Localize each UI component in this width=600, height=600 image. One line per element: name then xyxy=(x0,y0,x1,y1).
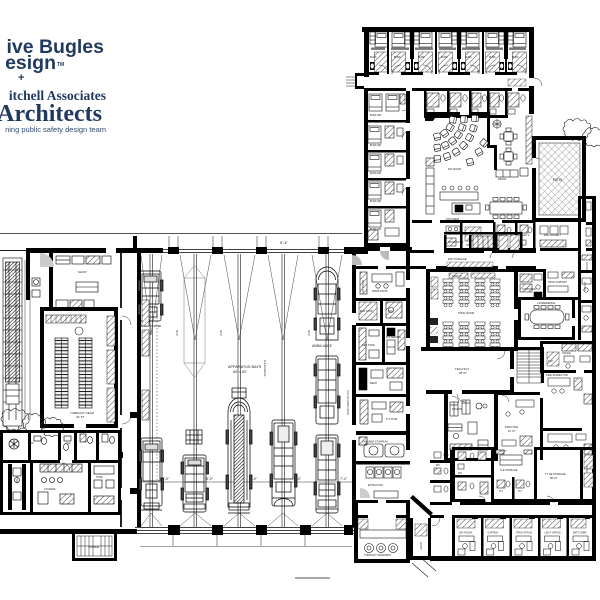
svg-text:DAY ROOM: DAY ROOM xyxy=(459,532,472,535)
svg-text:TOILET 2: TOILET 2 xyxy=(519,234,530,237)
svg-text:JAN: JAN xyxy=(388,310,393,313)
svg-text:22' 07': 22' 07' xyxy=(508,429,516,433)
svg-text:EMS STOR: EMS STOR xyxy=(360,310,373,313)
svg-text:BUNK RM: BUNK RM xyxy=(370,114,381,117)
svg-text:CLO: CLO xyxy=(548,360,553,363)
svg-text:TT SE STORAGE: TT SE STORAGE xyxy=(545,472,566,476)
svg-text:BUNK: BUNK xyxy=(418,56,425,59)
svg-text:OFFICE: OFFICE xyxy=(585,262,588,271)
svg-text:STOR: STOR xyxy=(96,476,103,479)
svg-text:DISPLAY: DISPLAY xyxy=(452,275,462,278)
svg-text:DAY ROOM: DAY ROOM xyxy=(448,168,461,171)
svg-text:TOILET 1: TOILET 1 xyxy=(497,234,508,237)
svg-text:BUNK: BUNK xyxy=(370,56,377,59)
svg-text:WC: WC xyxy=(96,442,100,445)
svg-text:7'-4": 7'-4" xyxy=(340,477,348,481)
svg-text:BUNK: BUNK xyxy=(512,56,519,59)
svg-text:CAPTAIN: CAPTAIN xyxy=(488,532,498,535)
svg-text:WC: WC xyxy=(458,472,462,475)
svg-text:30'-0": 30'-0" xyxy=(175,330,178,336)
svg-text:OFFICE: OFFICE xyxy=(562,352,571,355)
svg-text:PRACTICE: PRACTICE xyxy=(505,425,518,429)
svg-text:30'-0": 30'-0" xyxy=(219,330,222,336)
svg-text:BUNK: BUNK xyxy=(489,56,496,59)
svg-text:WC: WC xyxy=(436,464,440,467)
svg-text:HOSE STOR: HOSE STOR xyxy=(448,240,463,244)
svg-text:CANNABIS STUARIUM: CANNABIS STUARIUM xyxy=(362,441,387,444)
svg-text:9'-4": 9'-4" xyxy=(280,240,289,245)
svg-text:28' 07': 28' 07' xyxy=(459,371,468,375)
svg-text:BATT CHIEF: BATT CHIEF xyxy=(573,532,587,535)
svg-text:GEN STOR: GEN STOR xyxy=(362,344,375,347)
svg-text:ning public safety design team: ning public safety design team xyxy=(5,125,106,134)
svg-text:TM: TM xyxy=(57,62,64,68)
svg-text:+: + xyxy=(18,72,24,84)
svg-text:30'-0": 30'-0" xyxy=(307,330,310,336)
svg-text:COMPUTER: COMPUTER xyxy=(522,288,536,291)
svg-text:SHWR: SHWR xyxy=(15,476,18,484)
svg-text:BUNK: BUNK xyxy=(465,56,472,59)
svg-text:BUNK: BUNK xyxy=(394,56,401,59)
svg-text:MECH: MECH xyxy=(370,382,377,385)
svg-text:CONFERENCE: CONFERENCE xyxy=(537,301,555,305)
svg-text:APPARATUS BAYS: APPARATUS BAYS xyxy=(228,365,262,369)
svg-text:OFFICE: OFFICE xyxy=(583,282,586,291)
svg-text:TLE STORAGE: TLE STORAGE xyxy=(500,469,518,472)
svg-text:BUNK: BUNK xyxy=(441,56,448,59)
svg-text:AMBULANCE: AMBULANCE xyxy=(312,344,332,348)
svg-text:BUNK RM: BUNK RM xyxy=(370,228,381,231)
svg-text:BREAK RM: BREAK RM xyxy=(361,280,364,293)
svg-text:PATIO: PATIO xyxy=(553,178,563,182)
svg-text:TRNG SUPPORT: TRNG SUPPORT xyxy=(548,281,567,284)
svg-text:8'-0": 8'-0" xyxy=(206,477,214,481)
svg-text:WORK ROOM: WORK ROOM xyxy=(372,290,388,293)
svg-text:STOR: STOR xyxy=(585,466,588,473)
svg-text:ENTRY: ENTRY xyxy=(419,542,422,550)
svg-text:BUNK RM: BUNK RM xyxy=(370,144,381,147)
svg-text:58' 07': 58' 07' xyxy=(550,476,558,480)
svg-text:42' 57': 42' 57' xyxy=(76,415,85,419)
svg-text:EXIT PASSAGE: EXIT PASSAGE xyxy=(448,257,467,261)
svg-text:JAN: JAN xyxy=(66,442,71,445)
svg-text:FLX SERVER: FLX SERVER xyxy=(386,336,401,339)
svg-text:BUNK RM: BUNK RM xyxy=(370,172,381,175)
svg-text:25' 07': 25' 07' xyxy=(500,450,507,453)
svg-text:HALL: HALL xyxy=(466,244,473,247)
svg-text:PPE LAUNDRY: PPE LAUNDRY xyxy=(544,234,561,237)
svg-text:TLT: TLT xyxy=(499,490,504,493)
svg-text:60' x 92': 60' x 92' xyxy=(233,370,247,374)
svg-text:TURNOUT WASH/DRY: TURNOUT WASH/DRY xyxy=(364,553,391,557)
svg-text:LIEUT OFFICE: LIEUT OFFICE xyxy=(545,532,562,535)
svg-text:FITNESS: FITNESS xyxy=(452,408,463,411)
svg-text:TRNG OFFICE: TRNG OFFICE xyxy=(516,532,533,535)
svg-text:TLT: TLT xyxy=(518,490,523,493)
svg-text:TLT STOR: TLT STOR xyxy=(386,418,398,421)
svg-text:FIRE INSPECTOR: FIRE INSPECTOR xyxy=(546,373,568,377)
svg-text:WC: WC xyxy=(30,442,34,445)
svg-text:TRNG ROOM: TRNG ROOM xyxy=(458,311,474,315)
svg-text:esign: esign xyxy=(5,52,56,74)
svg-text:92'-0": 92'-0" xyxy=(159,310,162,316)
svg-text:BUNK RM: BUNK RM xyxy=(370,200,381,203)
svg-text:LOCKERS: LOCKERS xyxy=(44,488,56,491)
svg-text:SHOP: SHOP xyxy=(78,270,87,274)
svg-text:Architects: Architects xyxy=(0,101,102,127)
svg-text:EXTRACTOR: EXTRACTOR xyxy=(368,484,383,487)
svg-text:FUTURE AMBULANCE: FUTURE AMBULANCE xyxy=(346,390,349,416)
svg-text:TOWER: TOWER xyxy=(88,545,100,549)
svg-text:5+1-E2 AERIAL: 5+1-E2 AERIAL xyxy=(263,360,266,377)
svg-text:DINING: DINING xyxy=(498,178,507,181)
